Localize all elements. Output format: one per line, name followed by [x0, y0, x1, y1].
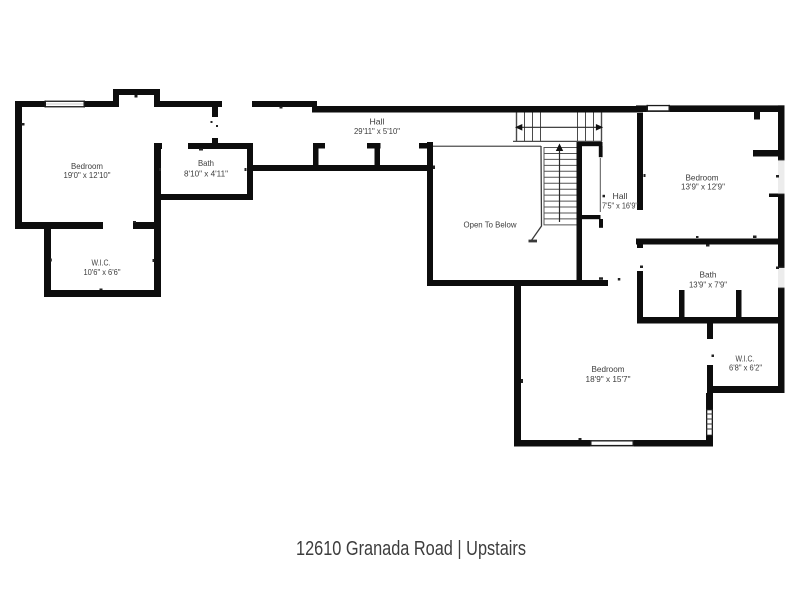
svg-text:13'9" x 7'9": 13'9" x 7'9" — [689, 280, 727, 290]
svg-text:18'9" x 15'7": 18'9" x 15'7" — [586, 374, 631, 384]
svg-text:Bath: Bath — [198, 158, 214, 168]
svg-text:Open To Below: Open To Below — [464, 220, 518, 230]
svg-text:Bath: Bath — [700, 270, 717, 280]
svg-text:8'10" x 4'11": 8'10" x 4'11" — [184, 169, 228, 179]
svg-text:13'9" x 12'9": 13'9" x 12'9" — [681, 182, 725, 192]
svg-text:7'5" x 16'9": 7'5" x 16'9" — [602, 201, 638, 211]
svg-text:Hall: Hall — [613, 191, 628, 201]
svg-text:19'0" x 12'10": 19'0" x 12'10" — [64, 170, 111, 180]
svg-text:6'8" x 6'2": 6'8" x 6'2" — [729, 363, 762, 373]
svg-text:29'11" x 5'10": 29'11" x 5'10" — [354, 126, 400, 136]
svg-text:12610 Granada Road | Upstairs: 12610 Granada Road | Upstairs — [296, 538, 526, 560]
svg-text:10'6" x 6'6": 10'6" x 6'6" — [84, 267, 121, 277]
svg-text:W.I.C.: W.I.C. — [92, 258, 111, 268]
svg-text:Bedroom: Bedroom — [592, 364, 625, 374]
svg-text:Hall: Hall — [370, 117, 385, 127]
